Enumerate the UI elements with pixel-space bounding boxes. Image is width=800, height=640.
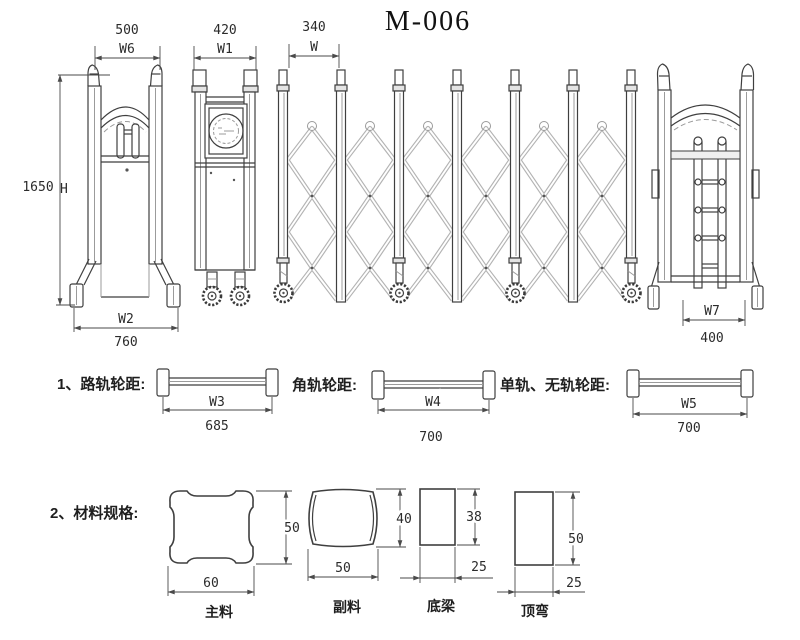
dim-label-w2: W2 [118,312,134,327]
gate-post-wheeled [275,70,293,302]
svg-text:38: 38 [466,510,482,525]
dim-w3: W3 685 [163,395,272,434]
profile-main-material [170,491,253,563]
dim-gate-pitch: 340 W [289,20,339,68]
left-pillar-front-view [70,65,180,307]
svg-text:25: 25 [566,576,582,591]
dim-w4: W4 700 [378,395,489,445]
dim-bottom-beam-width: 25 [400,547,493,583]
dim-w5: W5 700 [633,397,747,436]
right-pillar-front-view [648,64,763,309]
svg-text:685: 685 [205,419,228,434]
dim-value-340: 340 [302,20,325,35]
dim-value-420: 420 [213,23,236,38]
gate-drawing-canvas: M-006 [0,0,800,640]
gate-post [567,70,579,302]
dim-label-h: H [60,182,68,197]
track-wheelbase-row: 1、路轨轮距: W3 685 角轨轮距: [57,369,753,445]
dim-motor-pillar-width: 420 W1 [194,23,256,70]
dim-label-w: W [310,40,318,55]
svg-text:700: 700 [677,421,700,436]
dim-top-bend-width: 25 [497,567,585,597]
dim-label-w1: W1 [217,42,233,57]
track-heading-rail: 1、路轨轮距: [57,375,145,393]
drawing-title: M-006 [385,6,471,37]
gate-post [451,70,463,302]
dim-bottom-beam-height: 38 [457,489,482,545]
svg-text:W5: W5 [681,397,697,412]
axle-single-track [627,370,753,397]
svg-text:60: 60 [203,576,219,591]
material-spec-row: 2、材料规格: 50 60 主料 40 [50,489,585,620]
technical-drawing-page: M-006 [0,0,800,640]
material-label-top-bend: 顶弯 [521,603,549,619]
dim-secondary-height: 40 [376,489,412,547]
dim-label-w6: W6 [119,42,135,57]
svg-text:W3: W3 [209,395,225,410]
svg-text:25: 25 [471,560,487,575]
gate-post [335,70,347,302]
dim-right-pillar-base-width: W7 400 [683,300,745,346]
dim-value-400: 400 [700,331,723,346]
svg-text:50: 50 [284,521,300,536]
profile-secondary-material [309,490,377,547]
profile-bottom-beam [420,489,455,545]
material-label-bottom-beam: 底梁 [427,598,456,614]
material-label-main: 主料 [205,604,233,620]
dim-left-pillar-base-width: W2 760 [74,308,178,350]
motor-pillar-side-view [192,70,258,305]
material-heading: 2、材料规格: [50,504,138,522]
gate-post-wheeled [391,70,409,302]
dim-value-500: 500 [115,23,138,38]
svg-text:700: 700 [419,430,442,445]
dim-label-w7: W7 [704,304,720,319]
dim-value-760: 760 [114,335,137,350]
svg-text:50: 50 [335,561,351,576]
track-heading-single: 单轨、无轨轮距: [500,376,610,394]
dim-secondary-width: 50 [308,549,378,581]
dim-value-1650: 1650 [22,180,53,195]
svg-text:40: 40 [396,512,412,527]
dim-left-pillar-top-width: 500 W6 [95,23,160,70]
dim-main-height: 50 [256,491,300,564]
dim-top-bend-height: 50 [555,492,584,565]
track-heading-corner: 角轨轮距: [292,376,357,394]
profile-top-bend [515,492,553,565]
svg-text:W4: W4 [425,395,441,410]
gate-post-wheeled [507,70,525,302]
material-label-secondary: 副料 [333,599,361,615]
gate-post-wheeled [623,70,641,302]
axle-rail-track [157,369,278,396]
retractable-gate-body [275,70,641,302]
svg-text:50: 50 [568,532,584,547]
dim-main-width: 60 [168,566,254,596]
